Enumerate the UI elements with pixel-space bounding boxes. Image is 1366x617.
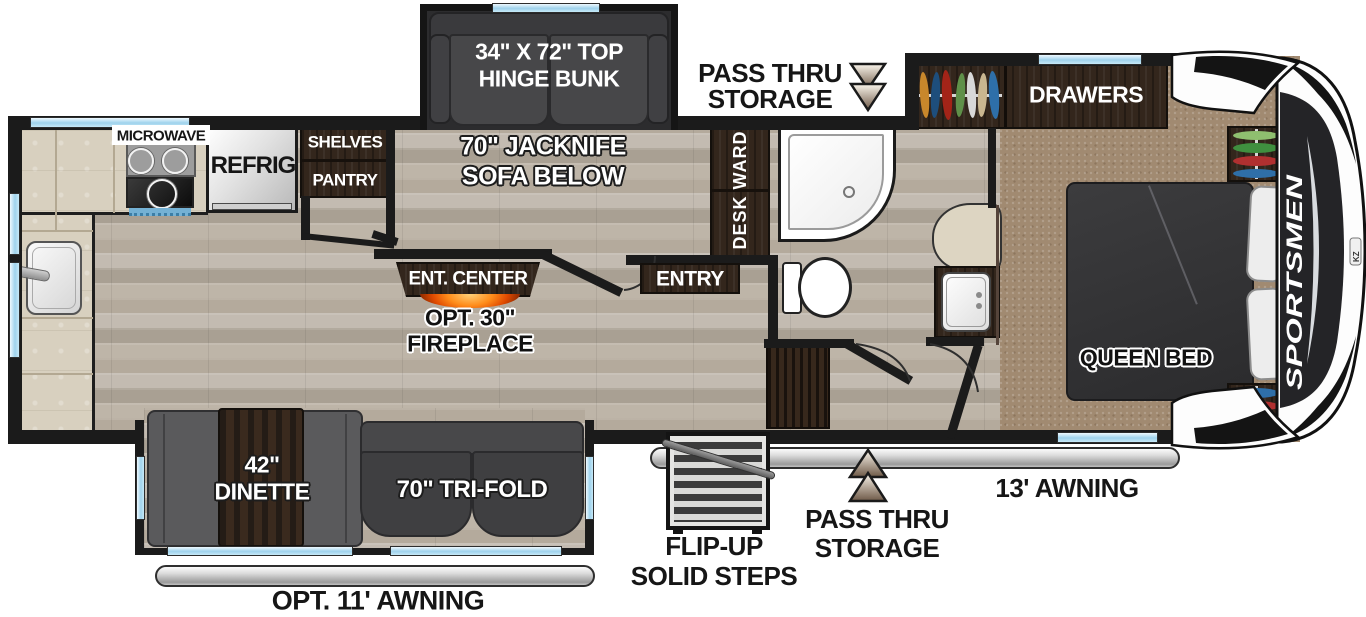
steps-label-line1: FLIP-UP [665,533,763,559]
brand-text: SPORTSMEN [1282,173,1307,390]
overlay-graphics: SPORTSMEN KZ [0,0,1366,617]
brand-logo-text: KZ [1352,251,1361,262]
pass-thru-top-line1: PASS THRU [698,60,842,86]
bunk-label-line2: HINGE BUNK [479,68,620,91]
awning-13-label: 13' AWNING [995,475,1138,501]
queen-bed-label: QUEEN BED [1080,347,1212,370]
jacknife-label-line1: 70" JACKNIFE [460,135,626,160]
jacknife-label-line2: SOFA BELOW [462,165,624,190]
pass-thru-bottom-line1: PASS THRU [805,506,949,532]
door-arc [930,344,978,392]
tri-fold-label: 70" TRI-FOLD [397,478,548,502]
pass-thru-top-line2: STORAGE [708,86,833,112]
refrig-label: REFRIG [211,154,296,178]
steps-label-line2: SOLID STEPS [631,563,797,589]
awning-11-label: OPT. 11' AWNING [272,588,484,615]
bunk-label-line1: 34" X 72" TOP [475,41,623,64]
pantry-label: PANTRY [313,172,378,189]
dinette-label-line2: DINETTE [215,481,310,504]
desk-ward-label: DESK WARD [731,130,749,249]
ent-center-label: ENT. CENTER [408,270,527,289]
fireplace-label-line2: FIREPLACE [407,333,533,356]
rv-floorplan: SPORTSMEN KZ MICROWAVE REFRIG SHELVES PA… [0,0,1366,617]
entry-label: ENTRY [656,269,724,290]
pass-thru-arrows-up-icon [850,450,886,501]
microwave-label: MICROWAVE [117,129,206,144]
pass-thru-bottom-line2: STORAGE [815,535,940,561]
drawers-label: DRAWERS [1029,84,1143,107]
pass-thru-arrows-down-icon [851,64,885,110]
door-arc [856,344,910,381]
fireplace-label-line1: OPT. 30" [425,307,515,330]
front-cap: SPORTSMEN KZ [1172,52,1365,449]
shelves-label: SHELVES [308,134,383,151]
dinette-label-line1: 42" [245,454,280,477]
